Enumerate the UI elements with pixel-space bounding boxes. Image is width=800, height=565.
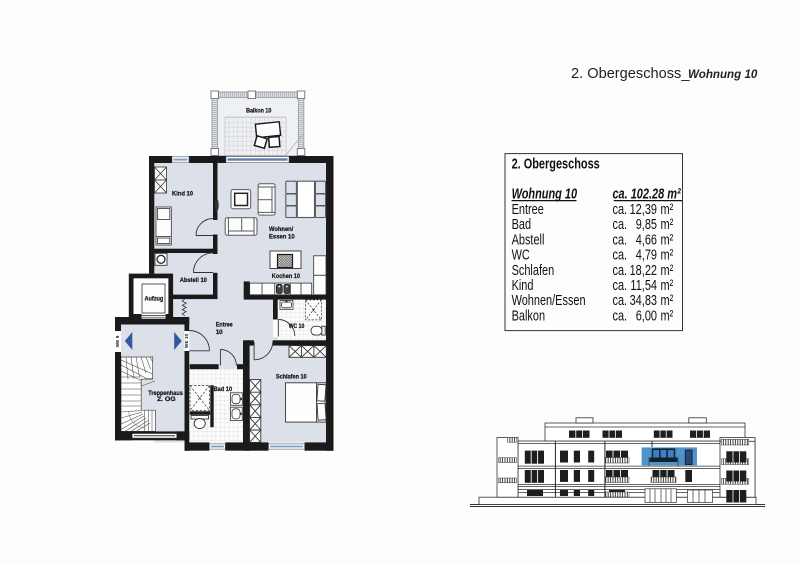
svg-text:2. Obergeschoss: 2. Obergeschoss [512, 155, 600, 172]
svg-text:ca.: ca. [612, 307, 627, 324]
svg-text:Schlafen 10: Schlafen 10 [276, 373, 307, 380]
svg-text:ca. 102.28 m²: ca. 102.28 m² [612, 185, 681, 202]
svg-text:Wohnung 10: Wohnung 10 [512, 185, 578, 202]
svg-text:WE 10: WE 10 [184, 333, 190, 348]
svg-text:Balkon: Balkon [512, 307, 545, 324]
svg-text:10: 10 [216, 329, 223, 336]
svg-text:WC 10: WC 10 [289, 323, 305, 330]
svg-text:6,00: 6,00 [636, 307, 657, 324]
svg-text:WE 9: WE 9 [115, 335, 121, 347]
svg-text:Wohnen/: Wohnen/ [269, 226, 293, 233]
svg-text:Balkon 10: Balkon 10 [246, 108, 271, 115]
svg-text:Wohnung 10: Wohnung 10 [688, 68, 758, 81]
svg-text:Bad 10: Bad 10 [214, 386, 233, 393]
svg-text:Essen 10: Essen 10 [269, 234, 295, 241]
svg-text:2. Obergeschoss_: 2. Obergeschoss_ [571, 66, 690, 82]
svg-text:Entree: Entree [216, 322, 233, 329]
svg-text:Kind 10: Kind 10 [172, 191, 193, 198]
svg-text:Aufzug: Aufzug [145, 296, 164, 303]
svg-text:Abstell 10: Abstell 10 [180, 277, 208, 284]
svg-text:m²: m² [661, 307, 674, 324]
svg-text:Kochen 10: Kochen 10 [272, 273, 301, 280]
svg-text:2. OG: 2. OG [157, 396, 176, 403]
